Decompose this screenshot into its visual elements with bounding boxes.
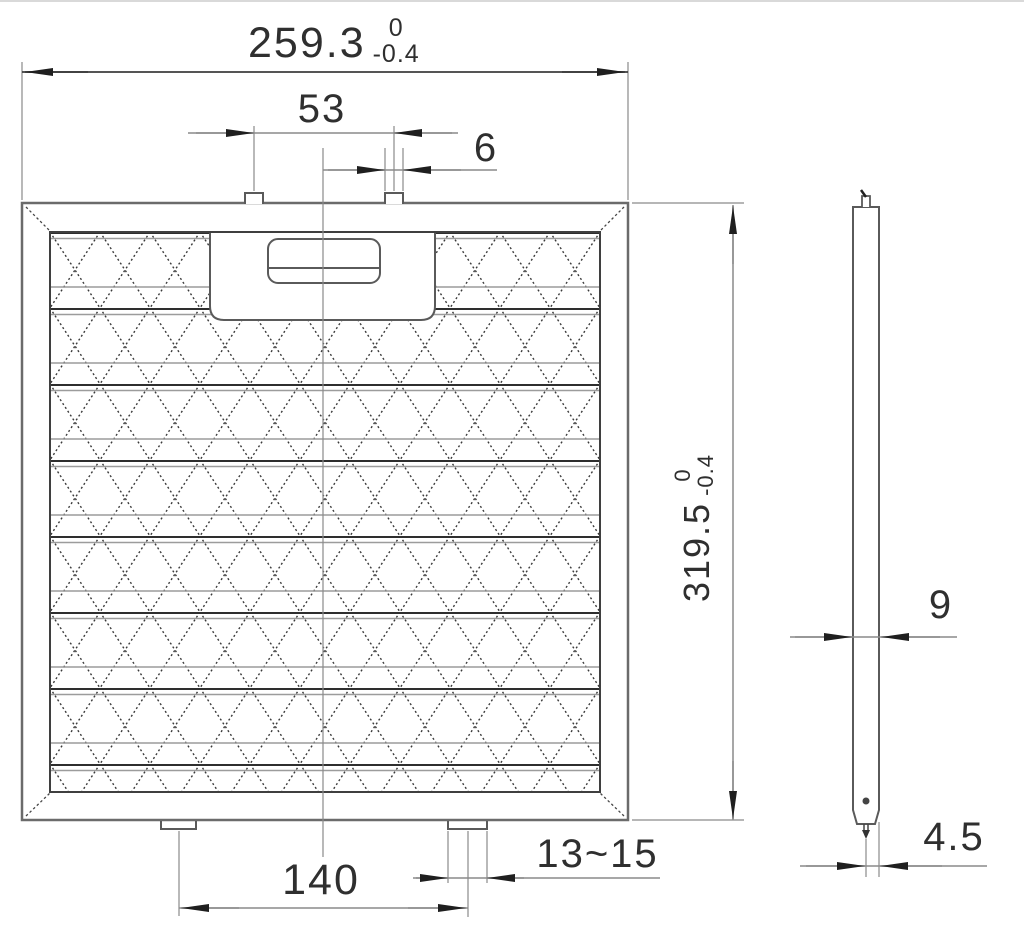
rivet-dot (863, 798, 870, 805)
bottom-tab-right (448, 821, 487, 829)
top-tab-left (245, 193, 263, 204)
dim-overall-width-label: 259.3 0 -0.4 (248, 14, 420, 65)
dim-top-tab-width-label: 6 (462, 128, 510, 168)
dim-side-thickness-label: 9 (917, 585, 965, 625)
bottom-tab-left (161, 821, 196, 829)
side-profile-outline (853, 207, 879, 824)
dim-top-tab-spacing-label: 53 (272, 89, 372, 129)
dim-bottom-tab-spacing-label: 140 (266, 859, 376, 902)
dim-overall-width-tolerance: 0 -0.4 (373, 16, 420, 67)
dim-bottom-tab-depth-label: 13~15 (515, 834, 680, 874)
dim-overall-height-tolerance: 0 -0.4 (672, 454, 717, 496)
top-tab-right (385, 193, 403, 204)
handle-grip-hole (268, 239, 380, 283)
side-top-tab (862, 196, 870, 207)
dim-overall-height-label: 319.5 0 -0.4 (649, 408, 715, 648)
dim-overall-width-value: 259.3 (248, 22, 366, 65)
technical-drawing-page: 259.3 0 -0.4 53 6 319.5 0 -0.4 140 13~15… (0, 0, 1024, 926)
side-bottom-pin (862, 824, 870, 839)
filter-drawing-canvas (0, 0, 1024, 926)
front-view (22, 148, 628, 917)
dim-side-pin-offset-label: 4.5 (912, 817, 996, 857)
side-view (853, 190, 879, 839)
